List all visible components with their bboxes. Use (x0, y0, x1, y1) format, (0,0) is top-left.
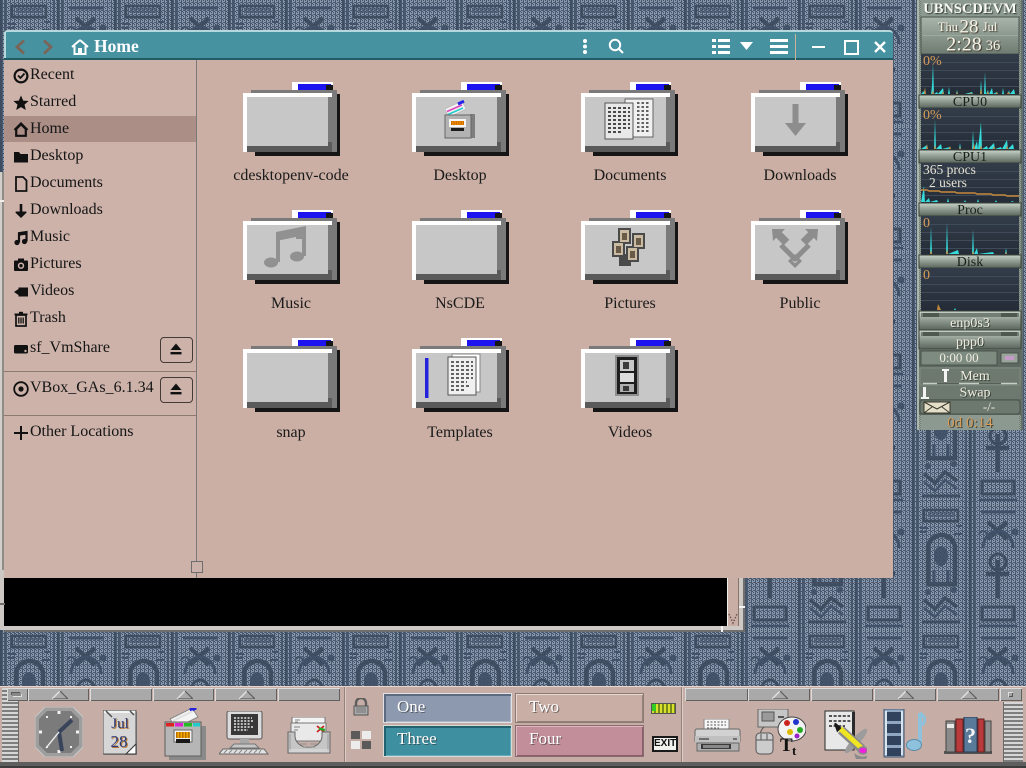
svg-text:?: ? (965, 723, 976, 748)
svg-text:UBNSCDEVM: UBNSCDEVM (923, 1, 1017, 17)
svg-text:t: t (792, 743, 797, 755)
svg-text:Disk: Disk (957, 255, 983, 270)
svg-text:2 users: 2 users (929, 175, 967, 190)
svg-text:36: 36 (986, 38, 1001, 54)
svg-text:ppp0: ppp0 (956, 335, 984, 350)
svg-text:enp0s3: enp0s3 (950, 316, 990, 331)
svg-text:0%: 0% (923, 54, 942, 69)
svg-text:Proc: Proc (957, 203, 983, 218)
svg-text:-/-: -/- (983, 399, 995, 414)
svg-text:0: 0 (923, 216, 930, 231)
svg-text:0d 0:14: 0d 0:14 (947, 415, 993, 430)
svg-text:Mem: Mem (960, 369, 990, 384)
svg-text:Jul: Jul (111, 716, 129, 732)
svg-text:Jul: Jul (983, 20, 998, 34)
svg-text:2:28: 2:28 (946, 34, 982, 56)
svg-text:0: 0 (923, 268, 930, 283)
svg-text:0%: 0% (923, 108, 942, 123)
svg-text:CPU0: CPU0 (953, 95, 987, 110)
svg-text:28: 28 (111, 732, 128, 751)
svg-text:0:00 00: 0:00 00 (939, 350, 978, 365)
svg-text:Thu: Thu (938, 20, 959, 34)
